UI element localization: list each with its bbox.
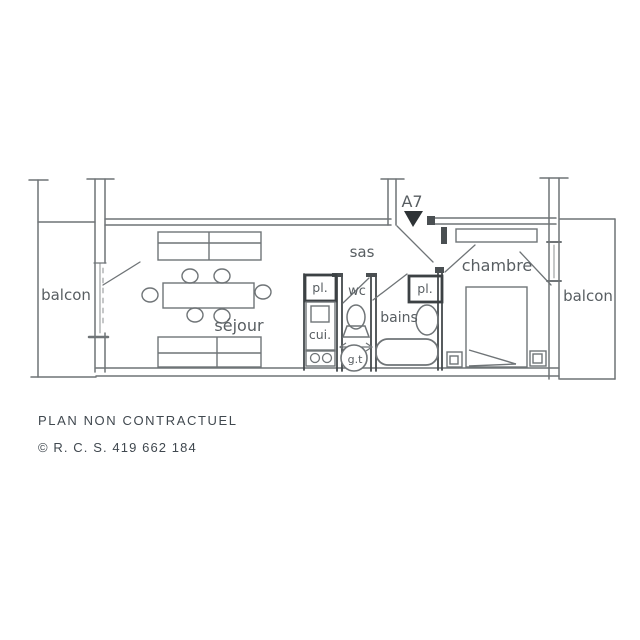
chair <box>142 288 158 302</box>
chair <box>214 269 230 283</box>
toilet-base <box>343 326 369 337</box>
bathtub <box>376 339 438 365</box>
nightstand-left-inner <box>450 356 458 364</box>
room-label-balcon-right: balcon <box>563 287 613 305</box>
burner <box>311 354 320 363</box>
dining-table <box>163 283 254 308</box>
entrance-door-swing <box>397 226 433 262</box>
entrance-arrow-icon <box>404 211 423 227</box>
chambre-furniture <box>447 229 546 367</box>
room-label-cuisine: cui. <box>309 327 331 342</box>
room-label-closet-kitchen: pl. <box>312 280 327 295</box>
room-label-wc: wc <box>348 284 366 299</box>
chair <box>182 269 198 283</box>
sejour-furniture <box>142 232 271 367</box>
room-label-sas: sas <box>350 243 375 261</box>
rcs-registration-number: © R. C. S. 419 662 184 <box>38 440 197 455</box>
wardrobe-post <box>441 227 447 244</box>
entrance-door-post <box>427 216 435 225</box>
room-label-chambre: chambre <box>462 256 533 275</box>
wardrobe-shelf <box>456 229 537 242</box>
floor-plan-drawing: balcon séjour sas A7 pl. cui. wc g.t bai… <box>0 0 640 640</box>
nightstand-left <box>447 352 462 367</box>
bed-fold-line-b <box>469 364 516 366</box>
burner <box>323 354 332 363</box>
room-label-closet-bains: pl. <box>417 281 432 296</box>
sejour-balcony-door-swing <box>103 262 140 285</box>
room-label-bains: bains <box>380 310 418 326</box>
entrance-label: A7 <box>401 192 422 211</box>
kitchen-sink <box>311 306 329 322</box>
bed <box>466 287 527 367</box>
nightstand-right-inner <box>533 354 542 363</box>
chambre-wall-post <box>435 267 444 273</box>
washbasin <box>416 305 438 335</box>
room-label-gaine-technique: g.t <box>348 353 363 366</box>
apartment-floorplan-page: balcon séjour sas A7 pl. cui. wc g.t bai… <box>0 0 640 640</box>
room-label-sejour: séjour <box>214 316 264 335</box>
wc-right-post <box>366 273 377 277</box>
sejour-sideboard-bottom <box>158 337 261 367</box>
bains-door-swing <box>373 274 407 300</box>
plan-disclaimer: PLAN NON CONTRACTUEL <box>38 413 238 428</box>
room-label-balcon-left: balcon <box>41 286 91 304</box>
bed-fold-line-a <box>469 350 516 364</box>
chair <box>255 285 271 299</box>
chair <box>187 308 203 322</box>
